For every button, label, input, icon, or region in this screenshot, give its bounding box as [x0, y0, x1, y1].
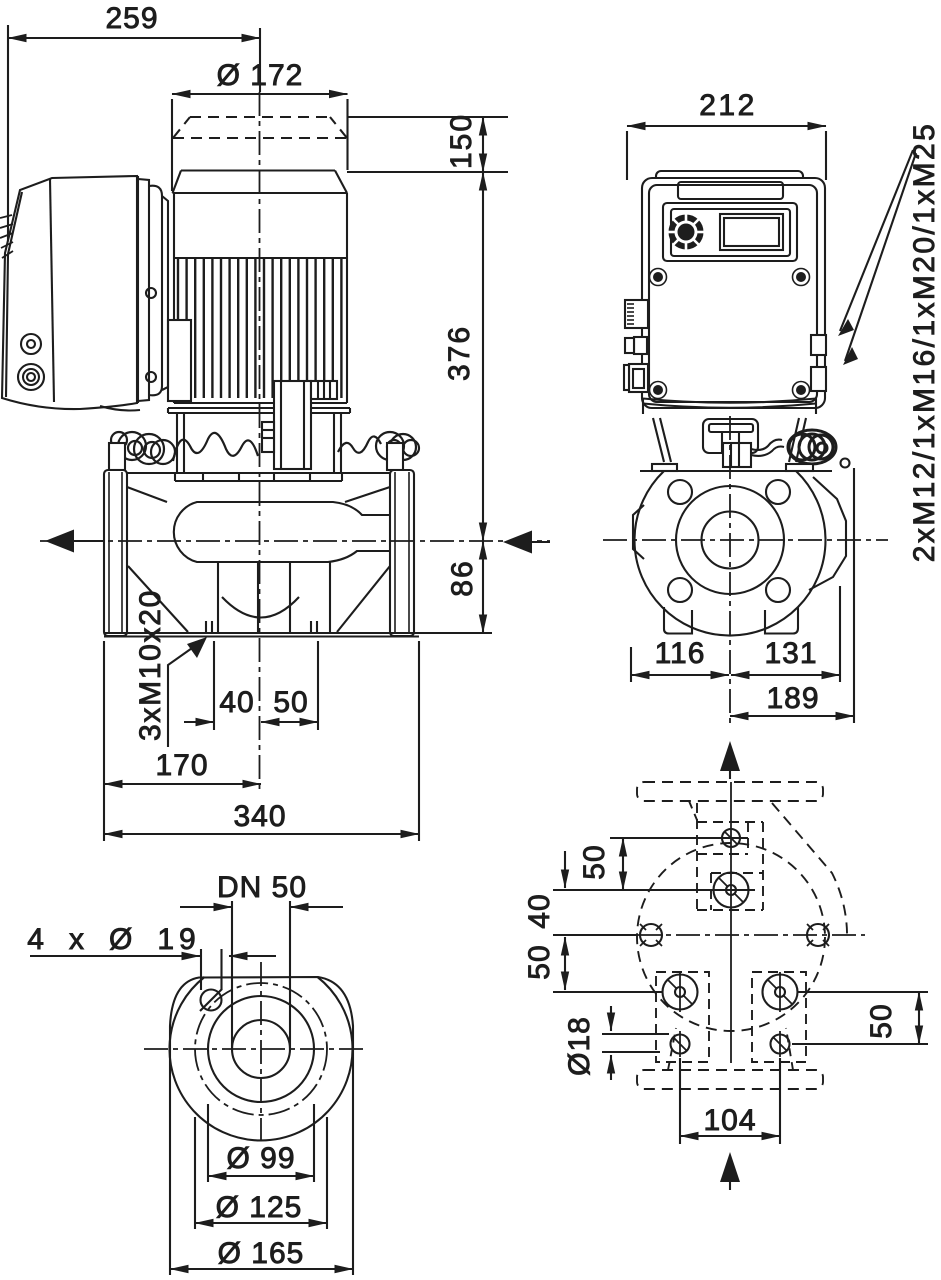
svg-text:50: 50 — [578, 844, 611, 879]
svg-text:3xM10x20: 3xM10x20 — [134, 589, 167, 741]
svg-text:131: 131 — [764, 637, 817, 670]
svg-text:40: 40 — [219, 686, 254, 719]
svg-text:DN 50: DN 50 — [217, 871, 307, 904]
svg-text:2xM12/1xM16/1xM20/1xM25: 2xM12/1xM16/1xM20/1xM25 — [908, 122, 941, 562]
svg-text:40: 40 — [523, 893, 556, 928]
svg-text:50: 50 — [523, 944, 556, 979]
svg-text:50: 50 — [865, 1003, 898, 1038]
svg-text:Ø 165: Ø 165 — [218, 1237, 305, 1270]
svg-text:4 x Ø 19: 4 x Ø 19 — [27, 923, 200, 956]
svg-text:104: 104 — [703, 1104, 756, 1137]
svg-text:170: 170 — [155, 749, 208, 782]
svg-text:50: 50 — [273, 686, 308, 719]
svg-text:Ø18: Ø18 — [563, 1016, 596, 1076]
svg-text:Ø 172: Ø 172 — [217, 59, 304, 92]
svg-text:189: 189 — [766, 682, 819, 715]
svg-text:116: 116 — [655, 637, 706, 670]
svg-text:150: 150 — [445, 113, 478, 169]
svg-text:86: 86 — [446, 559, 479, 596]
svg-text:212: 212 — [699, 89, 757, 122]
svg-text:376: 376 — [443, 325, 476, 381]
svg-text:Ø 99: Ø 99 — [226, 1142, 295, 1175]
svg-text:259: 259 — [105, 2, 158, 35]
svg-text:340: 340 — [233, 800, 286, 833]
svg-text:Ø 125: Ø 125 — [216, 1191, 303, 1224]
